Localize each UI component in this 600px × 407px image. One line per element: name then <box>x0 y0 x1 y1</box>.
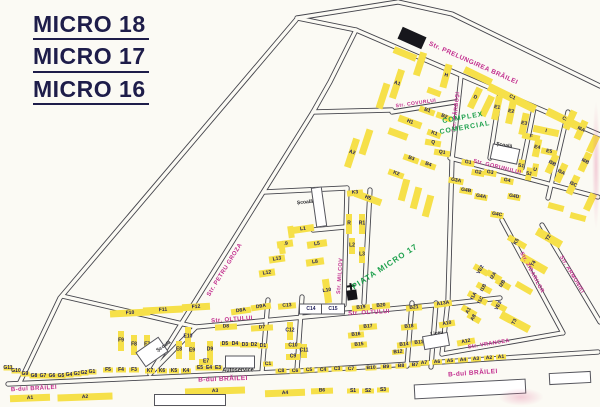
building-label: Q1 <box>438 150 445 156</box>
building-label: C1 <box>265 361 272 366</box>
building-label: C8 <box>278 368 285 373</box>
building-label: G8 <box>31 374 38 379</box>
building-label: B1 <box>423 108 431 115</box>
building-block: G6 <box>48 374 57 379</box>
building-label: C13 <box>282 303 292 309</box>
building-label: L10 <box>322 288 331 294</box>
title-block: MICRO 18 MICRO 17 MICRO 16 <box>33 12 149 109</box>
building-label: G2 <box>474 170 481 176</box>
building-outline <box>154 394 226 406</box>
building-label: A13A <box>436 301 449 308</box>
building-label: K4 <box>183 369 189 374</box>
building-label: B14 <box>399 342 409 348</box>
building-block: C9 <box>286 354 300 360</box>
building-label: C11 <box>300 349 309 354</box>
building-label: D8 <box>223 324 230 329</box>
building-label: L8 <box>312 259 318 265</box>
building-label: S1 <box>350 389 356 394</box>
building-label: F8 <box>131 343 137 348</box>
building-label: E2 <box>507 109 514 115</box>
building-label: S2 <box>365 389 371 394</box>
map-title-micro-18: MICRO 18 <box>33 12 149 40</box>
building-block: L2 <box>349 238 355 254</box>
building-label: A2 <box>348 150 356 157</box>
building-block: R <box>346 214 352 234</box>
building-block: D8 <box>215 323 237 330</box>
building-label: R1 <box>359 222 365 227</box>
building-block: A7 <box>419 360 429 366</box>
building-label: B3 <box>407 156 415 163</box>
building-block: G10 <box>12 369 21 374</box>
building-label: R <box>347 222 351 227</box>
building-label: I5A <box>556 169 565 177</box>
building-label: F <box>529 134 533 140</box>
building-block: F3 <box>129 368 139 373</box>
building-label: C5 <box>306 367 313 372</box>
building-block: D9 <box>207 341 213 359</box>
building-label: B20 <box>376 303 386 309</box>
building-block: S2 <box>362 389 374 394</box>
building-block: A6 <box>432 359 442 365</box>
building-label: D8A <box>236 308 247 314</box>
building-label: G3A <box>451 178 462 185</box>
building-block: A1 <box>10 394 50 402</box>
building-label: I1B <box>480 283 488 292</box>
building-block: D1 <box>258 344 268 349</box>
building-label: K7 <box>147 369 153 374</box>
building-block: K7 <box>145 369 155 374</box>
building-label: I5C <box>568 181 577 189</box>
building-label: A3 <box>473 356 480 361</box>
building-label: D4 <box>232 342 238 347</box>
building-block: G8 <box>30 374 39 379</box>
building-label: G1 <box>89 370 96 375</box>
building-label: K1 <box>430 131 438 138</box>
building-label: C14 <box>306 307 315 312</box>
building-label: D3 <box>242 343 248 348</box>
building-label: C6 <box>292 368 299 373</box>
building-label: I6B <box>580 158 589 166</box>
building-label: S1 <box>518 163 525 169</box>
building-block: A3 <box>471 356 481 362</box>
building-label: B8 <box>398 363 405 368</box>
building-label: B18 <box>404 324 414 330</box>
building-label: G4A <box>476 194 487 201</box>
building-label: E9 <box>189 349 195 354</box>
building-label: A3 <box>212 388 219 393</box>
building-label: F4 <box>118 368 124 373</box>
building-block: B8 <box>395 363 406 368</box>
building-label: G3 <box>486 170 493 176</box>
building-label: D7 <box>259 325 266 330</box>
building-label: K5 <box>171 369 177 374</box>
building-block: C11 <box>301 344 307 358</box>
building-block: A2 <box>484 355 494 361</box>
building-label: E4 <box>533 145 540 151</box>
building-label: Q <box>431 140 436 146</box>
building-label: F12 <box>192 304 201 309</box>
building-label: E1 <box>493 105 500 111</box>
building-label: H1 <box>406 119 414 126</box>
building-label: E5 <box>197 366 203 371</box>
building-label: L5 <box>314 241 320 247</box>
building-block: R1 <box>359 214 365 234</box>
building-label: F10 <box>126 310 135 315</box>
road-path <box>297 18 356 30</box>
building-label: L12 <box>262 270 271 276</box>
building-label: A2 <box>486 355 493 360</box>
building-block: B12 <box>392 349 404 355</box>
building-label: S3 <box>380 388 386 393</box>
building-label: E3 <box>215 366 221 371</box>
building-block: A4 <box>458 357 468 363</box>
building-block: C5 <box>303 367 314 372</box>
building-label: G4 <box>66 373 73 378</box>
building-block: E3 <box>214 366 223 371</box>
road-path <box>313 110 392 112</box>
building-label: E10 <box>184 335 193 340</box>
building-label: A4 <box>460 357 467 362</box>
building-label: B15 <box>354 342 364 348</box>
building-block: D7 <box>251 324 273 331</box>
building-label: G9 <box>22 372 29 377</box>
building-label: C4 <box>320 367 327 372</box>
building-block: E8 <box>176 341 182 359</box>
building-block: K5 <box>169 369 179 374</box>
building-label: G1 <box>464 160 471 166</box>
building-label: G6 <box>49 374 56 379</box>
building-outline <box>549 371 592 385</box>
building-block: B10 <box>365 365 376 370</box>
building-label: L1 <box>300 226 306 232</box>
road-path <box>264 188 347 192</box>
building-label: C12 <box>285 329 294 334</box>
building-label: A6 <box>434 359 441 364</box>
building-block: E9 <box>189 342 195 360</box>
building-block: G7 <box>39 374 48 379</box>
building-outline: C14 <box>299 304 323 315</box>
building-block: D5 <box>220 342 230 347</box>
building-block: B6 <box>311 388 333 395</box>
building-label: D1 <box>260 344 266 349</box>
building-label: B10 <box>366 365 375 370</box>
building-label: H5 <box>364 195 372 202</box>
church-icon <box>346 289 357 300</box>
building-label: T2 <box>545 234 552 242</box>
building-block: C8 <box>275 368 286 373</box>
building-block: E5 <box>196 366 205 371</box>
building-block: C12 <box>287 322 293 340</box>
building-label: C3 <box>334 366 341 371</box>
building-block: S1 <box>347 389 359 394</box>
building-block: K4 <box>181 369 191 374</box>
building-label: D5 <box>222 342 228 347</box>
building-block: A1 <box>496 354 506 360</box>
building-label: B7 <box>412 362 419 367</box>
building-block: G1 <box>88 370 97 375</box>
building-block: C1 <box>263 361 273 366</box>
building-label: A1 <box>498 354 505 359</box>
building-block: C3 <box>331 366 342 371</box>
building-outline: C15 <box>321 304 345 315</box>
building-label: I2B <box>499 279 507 288</box>
building-label: B6 <box>319 388 326 393</box>
building-label: VE3 <box>495 301 504 312</box>
map-title-micro-17: MICRO 17 <box>33 44 149 72</box>
building-block: B9 <box>380 364 391 369</box>
building-label: I5B <box>547 160 556 168</box>
building-label: D2 <box>251 343 257 348</box>
poi-label: Autoservice <box>222 368 254 374</box>
building-label: A10 <box>442 321 452 328</box>
building-label: K3 <box>352 190 359 196</box>
building-label: K2 <box>392 171 400 178</box>
building-block: A5 <box>445 358 455 364</box>
building-label: B21 <box>409 305 419 311</box>
building-label: A4 <box>282 390 289 395</box>
building-label: B9 <box>383 364 390 369</box>
building-label: E4 <box>206 366 212 371</box>
building-label: VE2 <box>476 265 485 276</box>
building-block: G9 <box>21 372 30 377</box>
building-label: F3 <box>131 368 137 373</box>
building-label: F11 <box>159 307 168 312</box>
building-label: L2 <box>349 244 355 249</box>
building-label: A5 <box>447 358 454 363</box>
road-path <box>313 30 356 112</box>
building-block: F12 <box>182 303 210 311</box>
building-label: D9 <box>207 348 213 353</box>
building-label: A2 <box>82 394 89 399</box>
building-label: G5 <box>58 374 65 379</box>
building-label: A1 <box>393 81 401 88</box>
building-block: C7 <box>345 366 356 371</box>
building-block: K6 <box>157 369 167 374</box>
building-label: E8 <box>176 348 182 353</box>
building-label: G4 <box>503 178 510 184</box>
building-block: E4 <box>205 366 214 371</box>
building-label: T3 <box>511 318 518 326</box>
building-label: I <box>545 128 547 133</box>
building-block: A4 <box>265 389 305 397</box>
building-block: C4 <box>317 367 328 372</box>
building-label: D <box>472 95 477 101</box>
building-label: F9 <box>118 339 124 344</box>
road-path <box>297 2 398 18</box>
building-label: K6 <box>159 369 165 374</box>
building-label: I1C <box>477 295 485 304</box>
building-block: L3 <box>359 247 365 263</box>
building-label: A1 <box>27 395 34 400</box>
building-label: L13 <box>272 256 281 262</box>
building-label: G4B <box>461 188 472 195</box>
building-label: G7 <box>40 374 47 379</box>
building-label: B12 <box>393 349 403 355</box>
building-block: C6 <box>289 368 300 373</box>
building-label: I6A <box>576 126 585 134</box>
building-label: C10 <box>288 344 297 349</box>
building-block: F4 <box>116 368 126 373</box>
building-block: F9 <box>118 331 124 351</box>
building-label: D9A <box>256 304 267 310</box>
building-label: L3 <box>359 253 365 258</box>
map-canvas: MICRO 18 MICRO 17 MICRO 16 A1H1A2H5K2B1B… <box>0 0 600 407</box>
building-block: S3 <box>377 388 389 393</box>
building-label: G10 <box>11 369 20 374</box>
building-label: G4C <box>492 212 503 219</box>
building-label: G4D <box>509 194 520 201</box>
building-label: U <box>533 167 537 173</box>
building-block: F5 <box>103 368 113 373</box>
building-label: A7 <box>421 360 428 365</box>
building-label: E3 <box>520 121 527 127</box>
building-label: H <box>444 73 449 79</box>
building-label: B16 <box>351 332 361 338</box>
building-label: B4 <box>424 162 432 169</box>
building-label: B17 <box>363 324 373 330</box>
building-block: D4 <box>230 342 240 347</box>
building-label: C9 <box>290 355 296 360</box>
building-label: C15 <box>328 307 337 312</box>
map-title-micro-16: MICRO 16 <box>33 77 149 105</box>
building-label: G2 <box>81 371 88 376</box>
building-label: F5 <box>105 368 111 373</box>
building-label: C7 <box>348 366 355 371</box>
